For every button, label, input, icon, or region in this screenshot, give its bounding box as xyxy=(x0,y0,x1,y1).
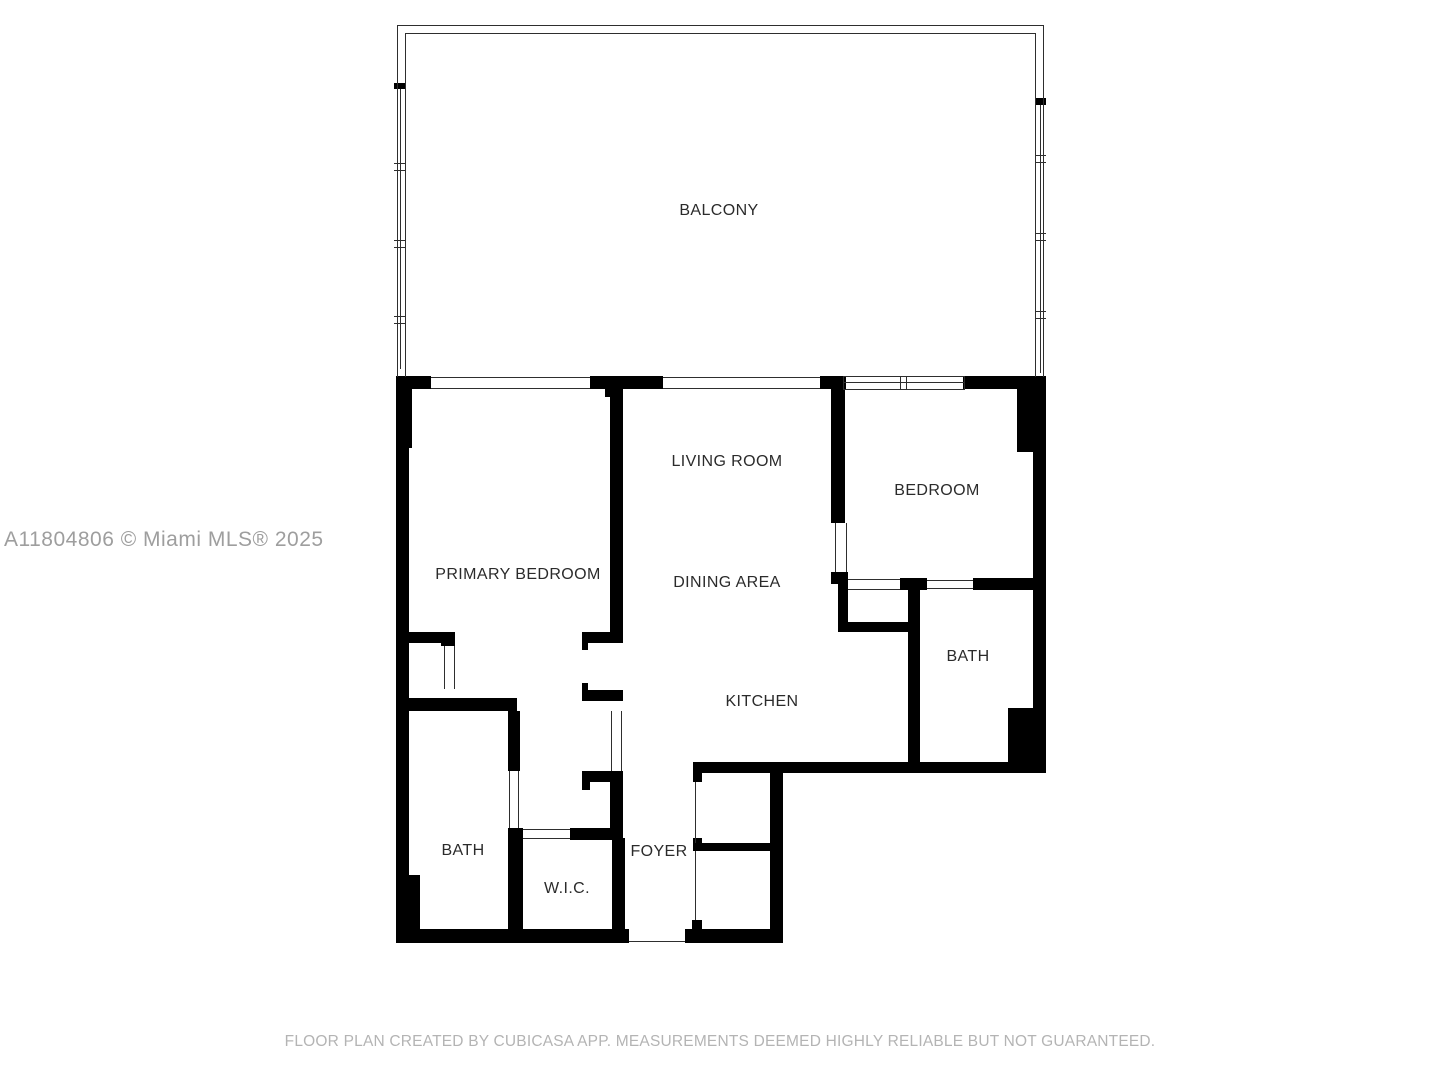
thin-line-segment xyxy=(400,89,401,369)
thin-line-segment xyxy=(835,523,836,572)
thin-line-segment xyxy=(1035,155,1046,156)
wall-segment xyxy=(403,698,517,711)
thin-line-segment xyxy=(523,829,570,830)
thin-line-segment xyxy=(629,941,685,942)
wall-segment xyxy=(582,782,590,790)
wall-segment xyxy=(396,376,409,941)
thin-line-segment xyxy=(1035,240,1046,241)
room-label-bath-2: BATH xyxy=(946,648,989,666)
thin-line-segment xyxy=(397,25,398,377)
wall-segment xyxy=(900,578,927,590)
thin-line-segment xyxy=(397,25,1044,26)
thin-line-segment xyxy=(843,376,844,390)
thin-line-segment xyxy=(523,838,570,839)
wall-segment xyxy=(508,711,520,771)
thin-line-segment xyxy=(1035,311,1046,312)
wall-segment xyxy=(582,643,588,650)
room-label-dining-area: DINING AREA xyxy=(673,574,781,592)
thin-line-segment xyxy=(431,377,590,378)
thin-line-segment xyxy=(454,646,455,689)
thin-line-segment xyxy=(394,316,405,317)
thin-line-segment xyxy=(1035,33,1036,377)
thin-line-segment xyxy=(843,376,965,377)
room-label-kitchen: KITCHEN xyxy=(725,693,798,711)
room-label-foyer: FOYER xyxy=(630,843,687,861)
thin-line-segment xyxy=(927,580,973,581)
thin-line-segment xyxy=(964,376,965,390)
wall-segment xyxy=(693,773,702,782)
room-label-bath-primary: BATH xyxy=(441,842,484,860)
wall-segment xyxy=(908,581,920,763)
thin-line-segment xyxy=(509,771,510,828)
room-label-wic: W.I.C. xyxy=(544,880,590,898)
thin-line-segment xyxy=(518,771,519,828)
thin-line-segment xyxy=(846,523,847,572)
thin-line-segment xyxy=(394,323,405,324)
wall-segment xyxy=(582,690,623,701)
thin-line-segment xyxy=(1035,162,1046,163)
wall-segment xyxy=(831,572,848,584)
thin-line-segment xyxy=(1035,233,1046,234)
room-label-primary-bedroom: PRIMARY BEDROOM xyxy=(435,566,600,584)
footer-disclaimer: FLOOR PLAN CREATED BY CUBICASA APP. MEAS… xyxy=(285,1033,1156,1051)
wall-segment xyxy=(693,762,1046,773)
thin-line-segment xyxy=(394,247,405,248)
thin-line-segment xyxy=(1043,25,1044,377)
thin-line-segment xyxy=(900,376,901,390)
floor-plan: BALCONY LIVING ROOM BEDROOM PRIMARY BEDR… xyxy=(0,0,1440,1080)
wall-segment xyxy=(770,762,783,941)
wall-segment xyxy=(685,929,783,943)
thin-line-segment xyxy=(405,33,1036,34)
wall-segment xyxy=(612,838,625,941)
wall-segment xyxy=(582,683,588,690)
thin-line-segment xyxy=(848,579,900,580)
wall-segment xyxy=(590,376,663,389)
thin-line-segment xyxy=(843,382,965,383)
wall-segment xyxy=(508,828,523,941)
thin-line-segment xyxy=(394,240,405,241)
thin-line-segment xyxy=(394,163,405,164)
wall-segment xyxy=(582,771,623,782)
thin-line-segment xyxy=(405,33,406,377)
thin-line-segment xyxy=(695,782,696,843)
thin-line-segment xyxy=(848,589,900,590)
thin-line-segment xyxy=(394,170,405,171)
thin-line-segment xyxy=(663,377,820,378)
room-label-living-room: LIVING ROOM xyxy=(671,453,782,471)
mls-watermark: A11804806 © Miami MLS® 2025 xyxy=(4,528,324,552)
wall-segment xyxy=(831,389,845,523)
thin-line-segment xyxy=(1035,318,1046,319)
wall-segment xyxy=(610,379,623,643)
wall-segment xyxy=(692,920,702,929)
wall-segment xyxy=(441,638,455,646)
wall-segment xyxy=(963,376,1017,389)
room-label-balcony: BALCONY xyxy=(679,202,758,220)
thin-line-segment xyxy=(444,646,445,689)
wall-segment xyxy=(700,843,770,851)
wall-segment xyxy=(838,622,910,632)
thin-line-segment xyxy=(611,711,612,771)
thin-line-segment xyxy=(843,389,965,390)
wall-segment xyxy=(973,578,1043,590)
thin-line-segment xyxy=(431,388,590,389)
wall-segment xyxy=(1035,98,1046,105)
thin-line-segment xyxy=(906,376,907,390)
thin-line-segment xyxy=(1040,105,1041,373)
thin-line-segment xyxy=(927,588,973,589)
room-label-bedroom: BEDROOM xyxy=(894,482,979,500)
wall-segment xyxy=(582,632,623,643)
thin-line-segment xyxy=(621,711,622,771)
thin-line-segment xyxy=(695,851,696,920)
thin-line-segment xyxy=(663,388,820,389)
